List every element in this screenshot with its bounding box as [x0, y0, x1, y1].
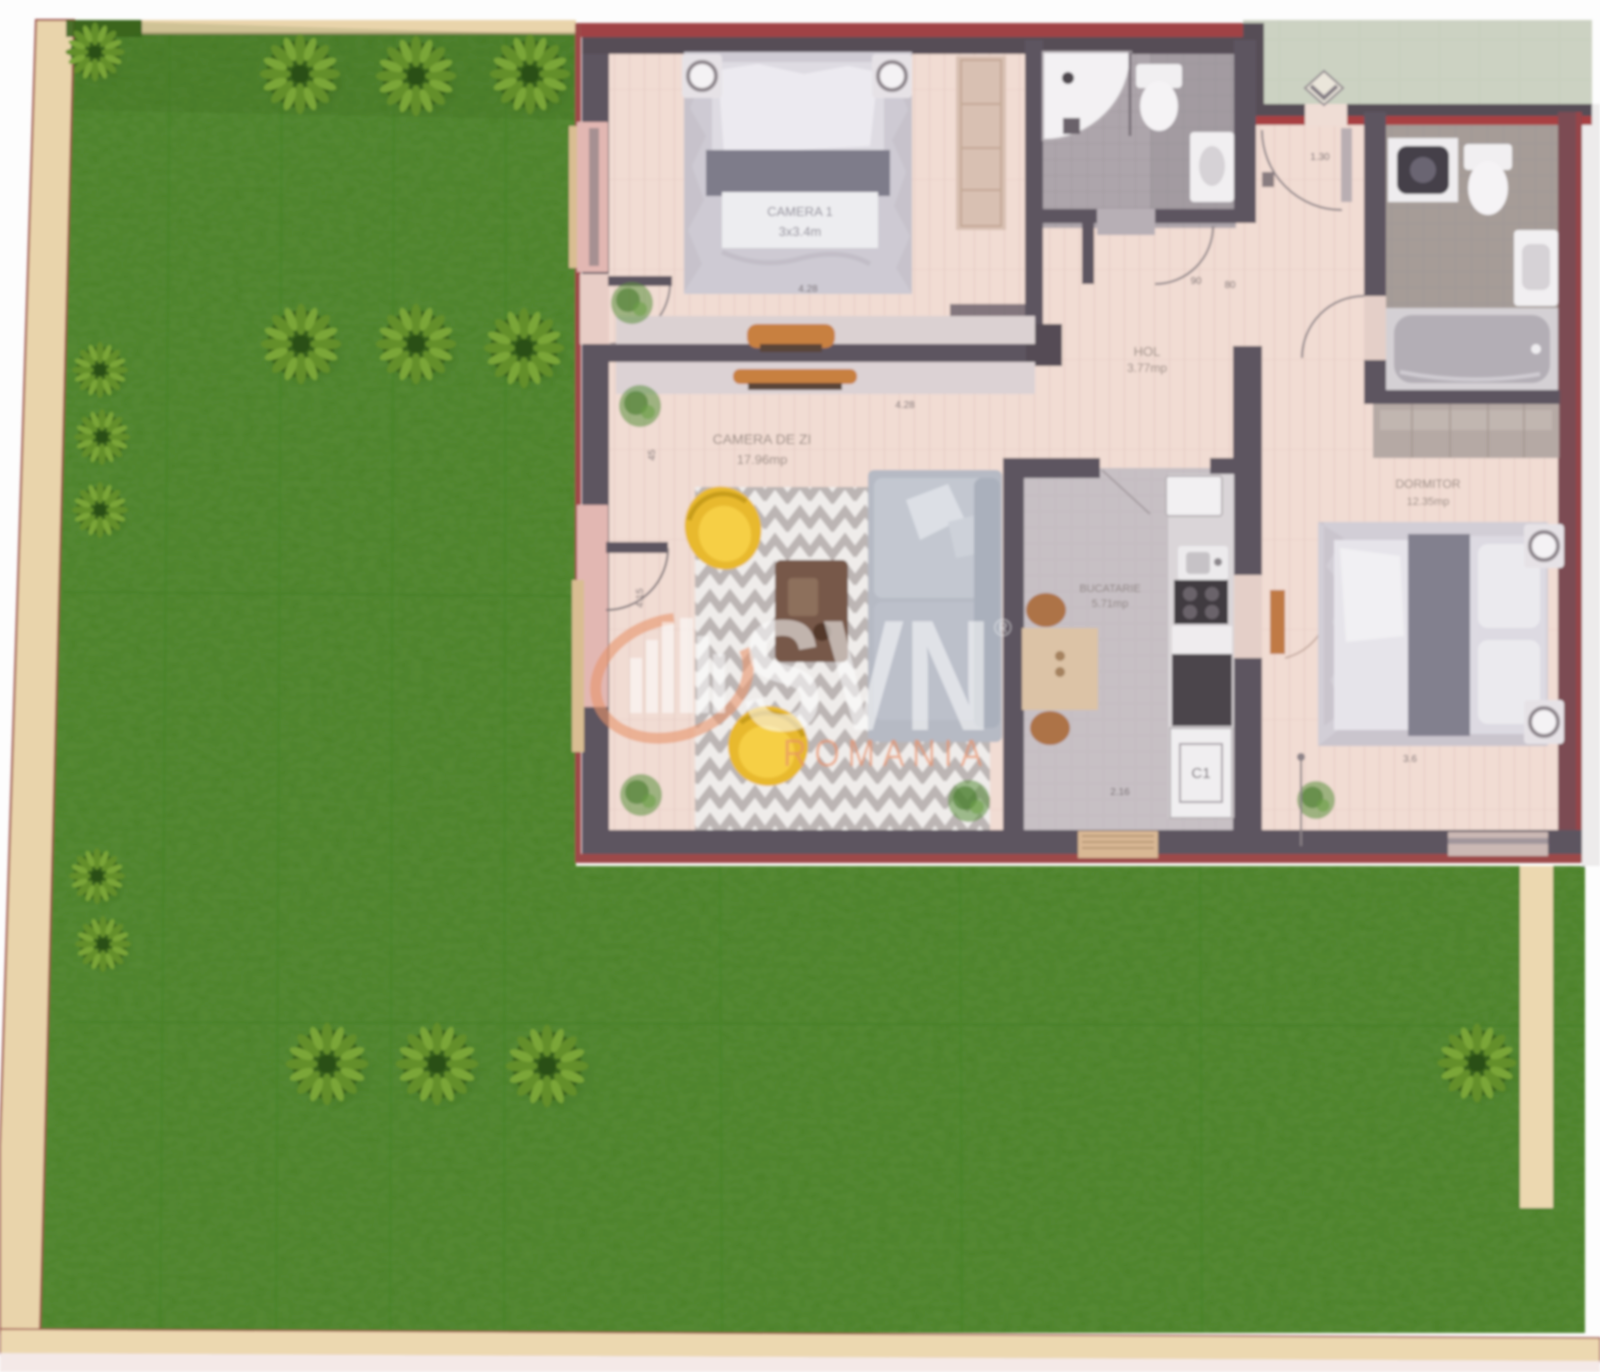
- svg-text:4.28: 4.28: [798, 284, 818, 295]
- svg-text:C1: C1: [1191, 765, 1210, 782]
- svg-text:®: ®: [994, 615, 1012, 642]
- svg-text:45: 45: [647, 449, 658, 461]
- svg-text:CAMERA 1: CAMERA 1: [767, 204, 833, 219]
- svg-text:HOL: HOL: [1134, 344, 1161, 359]
- svg-text:17.96mp: 17.96mp: [737, 452, 788, 467]
- svg-text:ROMANIA: ROMANIA: [783, 733, 990, 775]
- svg-text:DORMITOR: DORMITOR: [1395, 477, 1460, 491]
- svg-text:12.35mp: 12.35mp: [1407, 496, 1450, 508]
- svg-text:CAMERA DE ZI: CAMERA DE ZI: [713, 431, 812, 447]
- svg-text:3x3.4m: 3x3.4m: [779, 224, 822, 239]
- svg-text:3.77mp: 3.77mp: [1127, 361, 1167, 375]
- svg-text:BUCATARIE: BUCATARIE: [1079, 583, 1140, 595]
- svg-text:5.71mp: 5.71mp: [1092, 598, 1129, 610]
- svg-text:80: 80: [1224, 280, 1236, 291]
- svg-text:90: 90: [1190, 276, 1202, 287]
- svg-text:2.16: 2.16: [1110, 787, 1130, 798]
- svg-text:1.30: 1.30: [1310, 152, 1330, 163]
- svg-text:4.28: 4.28: [895, 400, 915, 411]
- svg-text:4.15: 4.15: [635, 588, 646, 608]
- svg-text:3.6: 3.6: [1403, 754, 1417, 765]
